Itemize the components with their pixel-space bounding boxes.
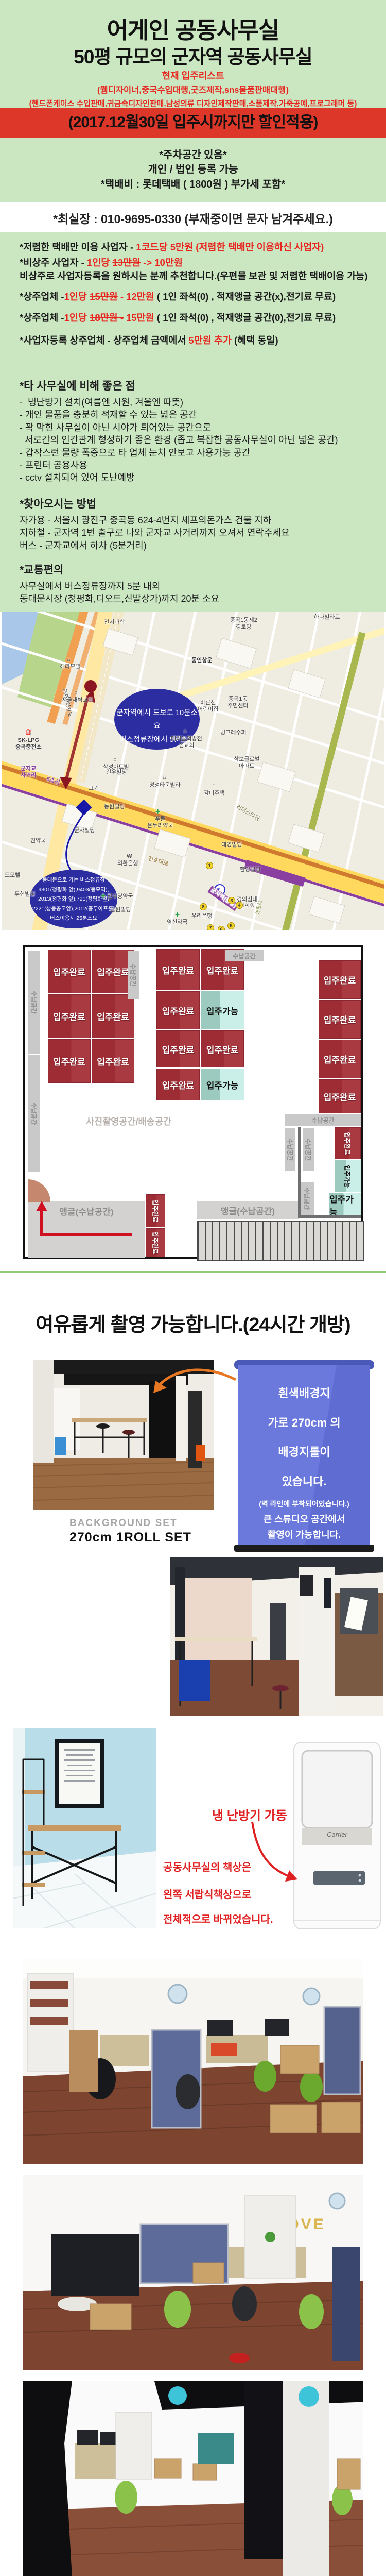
benefits-header: *타 사무실에 비해 좋은 점 [20,378,380,393]
storage-area: 수납공간 [128,951,139,999]
backdrop-mid-lines: 큰 스튜디오 공간에서촬영이 가능합니다. [238,1512,370,1543]
photo-office-curtains [23,2381,363,2576]
callout-line: 군자역에서 도보로 10분소요 [114,706,200,733]
map-label: 중곡1동 주민센터 [227,696,248,709]
floorplan-unit: 입주완료 [156,1030,200,1067]
map-label: 동인상운 [191,657,212,664]
backdrop-text: 흰색배경지가로 270cm 의배경지롤이있습니다. (벽 라인에 부착되어있습니… [238,1379,370,1543]
delivery-note: *택배비 : 롯데택배 ( 1800원 ) 부가세 포함* [0,176,386,191]
church-icon: ⌂ [74,689,78,696]
map-label: 중곡1동제2 경로당 [230,617,257,630]
transit-list: 사무실에서 버스정류장까지 5분 내외동대문시장 (청평화,디오트,신발상가)까… [20,580,380,605]
map-label: 진약국 [30,838,46,844]
callout-line: 2221(성동공고앞),2012(충무아프홀) [30,904,117,914]
box-label: 입주완료 [97,1055,129,1067]
benefit-item: - 프린터 공용사용 [20,459,380,471]
box-label: 입주완료 [324,973,356,986]
building-icon: ⌂ [67,656,71,663]
location-map: ▼ 군자역에서 도보로 10분소요버스정류장에서 5분소요 동대문으로 가는 버… [2,612,384,930]
box-label: 입주완료 [343,1132,352,1155]
map-label: 금원빌딩 [110,907,131,913]
map-label: 대영빌딩 [221,842,242,849]
map-label: 천수당약국 [107,893,133,900]
box-label: 입주완료 [162,963,195,976]
floorplan-unit: 입주완료 [156,991,200,1029]
shelving-slats [197,1221,364,1261]
photo-caption-main: 270cm 1ROLL SET [69,1530,191,1545]
floorplan-unit: 입주완료 [92,994,134,1038]
floorplan-unit: 입주완료 [146,1194,165,1227]
map-label: 삼보글로벌 아파트 [234,756,260,769]
pricing-segment: *상주업체 - [20,291,64,302]
pricing-segment: 13만원 [112,257,141,268]
photo-desk-bluewall [13,1728,156,1928]
benefit-item: 서로간의 인간관계 형성하기 좋은 환경 (좁고 복잡한 공동사무실이 아닌 넓… [20,434,380,446]
subway-exit-badge: 1 [206,862,213,869]
box-label: 입주완료 [53,1055,85,1067]
map-label: SK-LPG 중곡충전소 [15,737,42,750]
floorplan-unit: 입주완료 [48,1039,91,1083]
pricing-segment: 5만원 추가 [188,335,232,346]
studio-title: 여유롭게 촬영 가능합니다.(24시간 개방) [0,1309,386,1337]
church-icon: ⌂ [183,728,187,735]
floorplan-unit: 입주완료 [156,949,200,990]
map-label: 메리놀외방전 선교회 [171,736,202,749]
pricing-line: *상주업체 -1인당 15만원 - 12만원 ( 1인 좌석(0) , 적재앵글… [20,290,380,303]
pricing-segment: *저렴한 택배만 이용 사업자 - [20,242,136,252]
transit-section: *교통편의 사무실에서 버스정류장까지 5분 내외동대문시장 (청평화,디오트,… [20,562,380,605]
pricing-line: *비상주 사업자 - 1인당 13만원 -> 10만원 [20,256,380,269]
ac-arrow [242,1819,304,1886]
pricing-segment: 비상주로 사업자등록을 원하시는 분께 추천합니다.(우편물 보관 및 저렴한 … [20,270,367,281]
map-label: 명성타운빌라 [149,782,181,789]
building-icon: ⌂ [212,783,216,789]
bank-icon: ₩ [127,853,132,860]
box-label: 입주완료 [97,965,129,978]
box-label: 입주완료 [97,1010,129,1023]
photo-office-b: LOVE [23,2175,363,2370]
flyer-page: 어게인 공동사무실 50평 규모의 군자역 공동사무실 현재 입주리스트 (웹디… [0,0,386,2576]
pricing-segment: *비상주 사업자 - [20,257,87,268]
floorplan-unit: 입주완료 [92,1039,134,1083]
floorplan-unit: 입주완료 [319,960,361,999]
map-label: 우리은행 [191,913,212,920]
floorplan-unit: 입주가능 [201,991,244,1029]
box-label: 수납공간 [233,952,255,960]
map-label: 빙그레수퍼 [220,730,247,736]
tenant-list-line1: (웹디자이너,중국수입대행,굿즈제작,sns물품판매대행) [0,83,386,95]
pricing-segment: *사업자등록 상주업체 - 상주업체 금액에서 [20,335,188,346]
storage-area: 수납공간 [28,1055,40,1172]
benefits-list: - 냉난방기 설치(여름엔 시원, 겨울엔 따뜻)- 개인 물품을 충분히 적재… [20,396,380,484]
map-label: 감미주택 [204,790,224,797]
subway-exit-badge: 8 [200,903,207,910]
pricing-line: *저렴한 택배만 이용 사업자 - 1코드당 5만원 (저렴한 택배만 이용하신… [20,240,380,253]
floorplan-unit: 입주가능 [201,1069,244,1100]
photo-shipping-area-label: 사진촬영공간/배송공간 [86,1115,199,1128]
box-label: 앵글(수납공간) [221,1204,275,1217]
subway-exit-badge: 3 [228,897,235,904]
pricing-segment: 15만원 [124,312,154,323]
box-label: 입주완료 [53,965,85,978]
direction-item: 버스 - 군자교에서 하차 (5분거리) [20,539,380,552]
desk-note-line2: 왼쪽 서랍식책상으로 [163,1886,251,1901]
storage-area: 수납공간 [299,1182,314,1215]
building-icon: ⌂ [113,756,117,763]
box-label: 입주가능 [343,1165,352,1188]
map-label: 전시과학 [104,619,125,626]
floorplan-unit: 입주가능 [335,1160,361,1192]
backdrop-big-lines: 흰색배경지가로 270cm 의배경지롤이있습니다. [238,1379,370,1496]
map-label: 헤라모텔 [60,664,80,670]
floorplan-unit: 입주완료 [156,1069,200,1100]
discount-banner-text: (2017.12월30일 입주시까지만 할인적용) [0,108,386,138]
subway-exit-badge: 5 [227,922,235,929]
pharmacy-icon: ✚ [175,912,180,919]
building-icon: ⌂ [163,774,166,781]
pricing-line: 비상주로 사업자등록을 원하시는 분께 추천합니다.(우편물 보관 및 저렴한 … [20,269,380,282]
pricing-segment: ( 1인 좌석(0) , 적재앵글 공간(x),전기료 무료) [154,291,336,302]
subway-exit-badge: 6 [218,926,225,930]
divider-rule [0,1271,386,1273]
pricing-segment: *상주업체 - [20,312,64,323]
box-label: 입주완료 [151,1199,160,1222]
transit-item: 동대문시장 (청평화,디오트,신발상가)까지 20분 소요 [20,592,380,605]
backdrop-line: (벽 라인에 부착되어있습니다.) [238,1496,370,1512]
photo-studio-racks [170,1557,383,1716]
pricing-line: *사업자등록 상주업체 - 상주업체 금액에서 5만원 추가 (혜택 동일) [20,333,380,347]
backdrop-roll-graphic: 흰색배경지가로 270cm 의배경지롤이있습니다. (벽 라인에 부착되어있습니… [234,1360,374,1555]
storage-area: 수납공간 [303,1128,314,1171]
inner-wall [298,1215,361,1218]
box-label: 수납공간 [30,1102,39,1125]
map-label: 군자교 사거리 [21,766,36,778]
box-label: 입주가능 [329,1192,361,1218]
box-label: 수납공간 [303,1187,311,1210]
discount-banner: (2017.12월30일 입주시까지만 할인적용) [0,108,386,138]
pharmacy-icon: ✚ [101,893,106,900]
pricing-segment: 1인당 [87,257,112,268]
office-location-marker [84,680,97,692]
box-label: 수납공간 [30,991,39,1013]
benefit-item: - 냉난방기 설치(여름엔 시원, 겨울엔 따뜻) [20,396,380,409]
floorplan-unit: 입주완료 [48,950,91,993]
benefit-item: - 개인 물품을 충분히 적재할 수 있는 넓은 공간 [20,409,380,421]
floorplan-unit: 입주완료 [48,994,91,1038]
contact-phone: *최실장 : 010-9695-0330 (부재중이면 문자 남겨주세요.) [0,209,386,227]
pricing-segment: - 12만원 [118,291,154,302]
benefit-item: - 갑작스런 물량 폭증으로 타 업체 눈치 안보고 사용가능 공간 [20,447,380,459]
box-label: 입주완료 [151,1231,160,1254]
map-label: 푸른 온누리약국 [147,816,173,829]
entrance-arrow [29,1199,143,1257]
box-label: 입주가능 [206,1004,239,1017]
directions-section: *찾아오시는 방법 자가용 - 서울시 광진구 중곡동 624-4번지 셰프의돈… [20,496,380,552]
map-label: 두현빌딩 [14,891,35,898]
storage-area: 수납공간 [285,1114,361,1126]
benefit-item: - cctv 설치되어 있어 도난예방 [20,471,380,484]
box-label: 입주완료 [162,1078,195,1091]
transit-item: 사무실에서 버스정류장까지 5분 내외 [20,580,380,592]
map-label: 영신약국 [167,919,187,926]
pricing-segment: 1인당 [64,291,90,302]
page-subtitle: 50평 규모의 군자역 공동사무실 [0,41,386,69]
backdrop-line: 촬영이 가능합니다. [238,1527,370,1543]
subway-exit-badge: 4 [236,902,243,909]
map-label: 건우빌딩 [106,769,127,776]
backdrop-line: 있습니다. [238,1467,370,1496]
backdrop-line: 흰색배경지 [238,1379,370,1408]
transit-header: *교통편의 [20,562,380,577]
floorplan-unit: 입주완료 [319,1000,361,1039]
parking-note: *주차공간 있음* [0,146,386,161]
backdrop-line: 큰 스튜디오 공간에서 [238,1512,370,1527]
floorplan-unit: 입주완료 [335,1127,361,1159]
pricing-segment: 15만원 [90,291,118,302]
backdrop-weight-bar [234,1545,374,1552]
page-title: 어게인 공동사무실 [0,11,386,45]
subway-exit-badge: 7 [207,924,214,930]
box-label: 수납공간 [286,1138,295,1161]
registration-note: 개인 / 법인 등록 가능 [0,161,386,176]
tenant-list-header: 현재 입주리스트 [0,69,386,82]
backdrop-line: 가로 270cm 의 [238,1408,370,1437]
benefits-section: *타 사무실에 비해 좋은 점 - 냉난방기 설치(여름엔 시원, 겨울엔 따뜻… [20,378,380,484]
tenant-list-line2: (핸드폰케이스 수입판매,귀금속디자인판매,남성의류 디자인제작판매,소품제작,… [0,98,386,109]
floor-plan: 입주완료입주완료입주완료입주완료입주완료입주완료입주완료입주완료입주완료입주가능… [23,945,363,1259]
ac-brand-label: Carrier [327,1831,347,1838]
storage-area: 수납공간 [28,951,40,1054]
floorplan-unit: 입주가능 [329,1193,361,1216]
inner-wall [298,1127,301,1218]
box-label: 수납공간 [311,1116,334,1125]
directions-header: *찾아오시는 방법 [20,496,380,511]
desk-note-line1: 공동사무실의 책상은 [163,1859,251,1874]
box-label: 입주완료 [53,1010,85,1023]
box-label: 입주완료 [324,1013,356,1026]
backdrop-small-lines: (벽 라인에 부착되어있습니다.) [238,1496,370,1512]
map-label: 한양빌딩 [240,867,260,873]
map-label: 하나빌라트 [314,614,340,621]
pricing-segment: 1인당 [64,312,90,323]
callout-line: 버스이용시 25분소요 [30,913,117,923]
map-label: 고기 [89,785,99,792]
direction-item: 자가용 - 서울시 광진구 중곡동 624-4번지 셰프의돈가스 건물 지하 [20,514,380,527]
photo-caption-sub: BACKGROUND SET [69,1518,178,1529]
storage-area: 수납공간 [285,1128,295,1171]
callout-line: 동대문으로 가는 버스정류장 [30,875,117,885]
pricing-segment: 1코드당 5만원 (저렴한 택배만 이용하신 사업자) [136,242,324,252]
gas-station-icon: ⛽ [26,730,32,736]
box-label: 수납공간 [129,963,138,986]
photo-office-a [23,1958,363,2164]
backdrop-line: 배경지롤이 [238,1437,370,1467]
pharmacy-icon: ✚ [155,809,160,816]
map-label: 바른선 어린이집 [198,700,218,713]
box-label: 입주완료 [162,1043,195,1056]
box-label: 입주가능 [206,1078,239,1091]
pricing-line: *상주업체 -1인당 18만원 - 15만원 ( 1인 좌석(0) , 적재앵글… [20,311,380,324]
floorplan-unit: 입주완료 [319,1040,361,1078]
map-label: 드모텔 [5,872,20,879]
orange-arrow [144,1360,242,1406]
angle-storage: 앵글(수납공간) [197,1201,299,1219]
map-label: 외환은행 [117,860,138,867]
box-label: 입주완료 [324,1053,356,1065]
box-label: 입주완료 [206,1043,239,1056]
desk-note-line3: 전체적으로 바뀌었습니다. [163,1911,273,1926]
box-label: 입주완료 [206,963,239,976]
floorplan-unit: 입주완료 [146,1228,165,1257]
pricing-segment: 18만원 - [90,312,124,323]
pricing-segment: -> 10만원 [141,257,183,268]
storage-area: 수납공간 [225,950,264,961]
pricing-segment: ( 1인 좌석(0) , 적재앵글 공간(0),전기료 무료) [154,312,336,323]
box-label: 수납공간 [304,1138,313,1161]
direction-item: 지하철 - 군자역 1번 출구로 나와 군자교 사거리까지 오셔서 연락주세요 [20,527,380,539]
benefit-item: - 꽉 막힌 사무실이 아닌 시야가 틔어있는 공간으로 [20,421,380,434]
pricing-segment: (혜택 동일) [232,335,278,346]
directions-list: 자가용 - 서울시 광진구 중곡동 624-4번지 셰프의돈가스 건물 지하지하… [20,514,380,552]
floorplan-unit: 입주완료 [319,1079,361,1113]
box-label: 입주완료 [162,1004,195,1017]
floorplan-unit: 입주완료 [201,1030,244,1067]
box-label: 입주완료 [324,1090,356,1103]
map-label: 군자빌딩 [74,827,95,834]
map-label: 동원빌딩 [104,804,125,810]
